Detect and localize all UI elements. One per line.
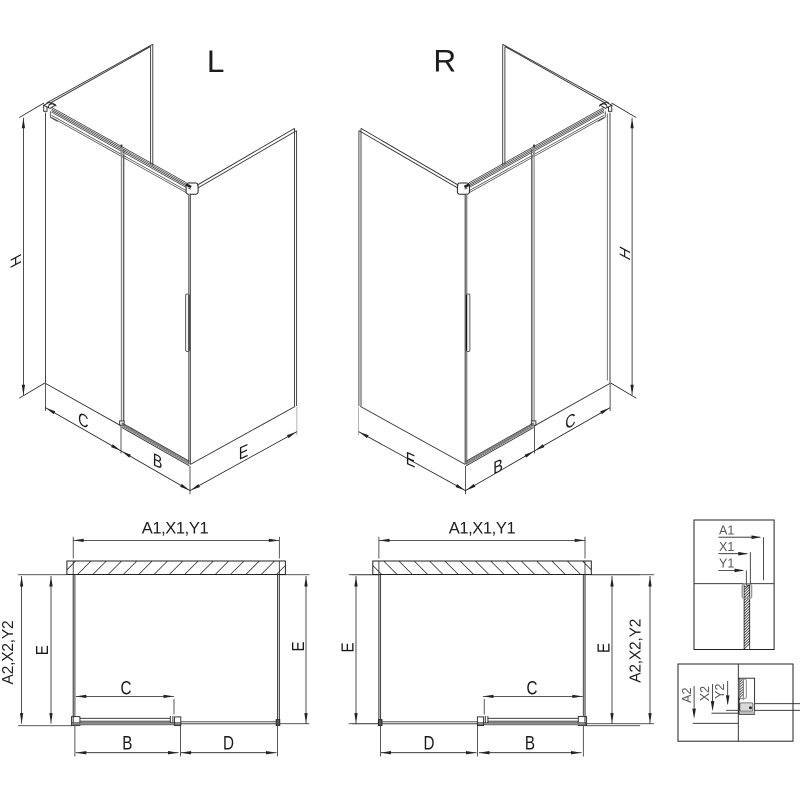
svg-text:E: E: [32, 645, 53, 655]
svg-text:B: B: [493, 454, 503, 478]
svg-text:E: E: [288, 641, 309, 651]
svg-text:C: C: [527, 677, 538, 699]
svg-text:D: D: [223, 731, 234, 753]
svg-text:C: C: [121, 677, 132, 699]
svg-text:A1,X1,Y1: A1,X1,Y1: [142, 520, 209, 538]
svg-text:X2: X2: [698, 686, 712, 701]
svg-text:Y1: Y1: [719, 557, 734, 571]
svg-text:B: B: [525, 731, 535, 753]
svg-text:D: D: [424, 731, 435, 753]
svg-text:A2,X2,Y2: A2,X2,Y2: [628, 619, 645, 683]
svg-text:E: E: [337, 642, 358, 652]
svg-text:A1: A1: [719, 524, 734, 538]
svg-text:E: E: [593, 643, 614, 653]
svg-text:B: B: [153, 449, 163, 473]
svg-text:A1,X1,Y1: A1,X1,Y1: [449, 520, 516, 538]
svg-text:A2,X2,Y2: A2,X2,Y2: [0, 621, 17, 685]
svg-text:A2: A2: [680, 688, 694, 703]
svg-text:R: R: [433, 43, 456, 79]
svg-text:Y2: Y2: [713, 684, 727, 699]
svg-text:X1: X1: [719, 540, 734, 554]
svg-text:L: L: [207, 43, 225, 79]
svg-text:E: E: [239, 440, 249, 464]
svg-text:E: E: [406, 448, 416, 472]
svg-text:B: B: [122, 731, 132, 753]
